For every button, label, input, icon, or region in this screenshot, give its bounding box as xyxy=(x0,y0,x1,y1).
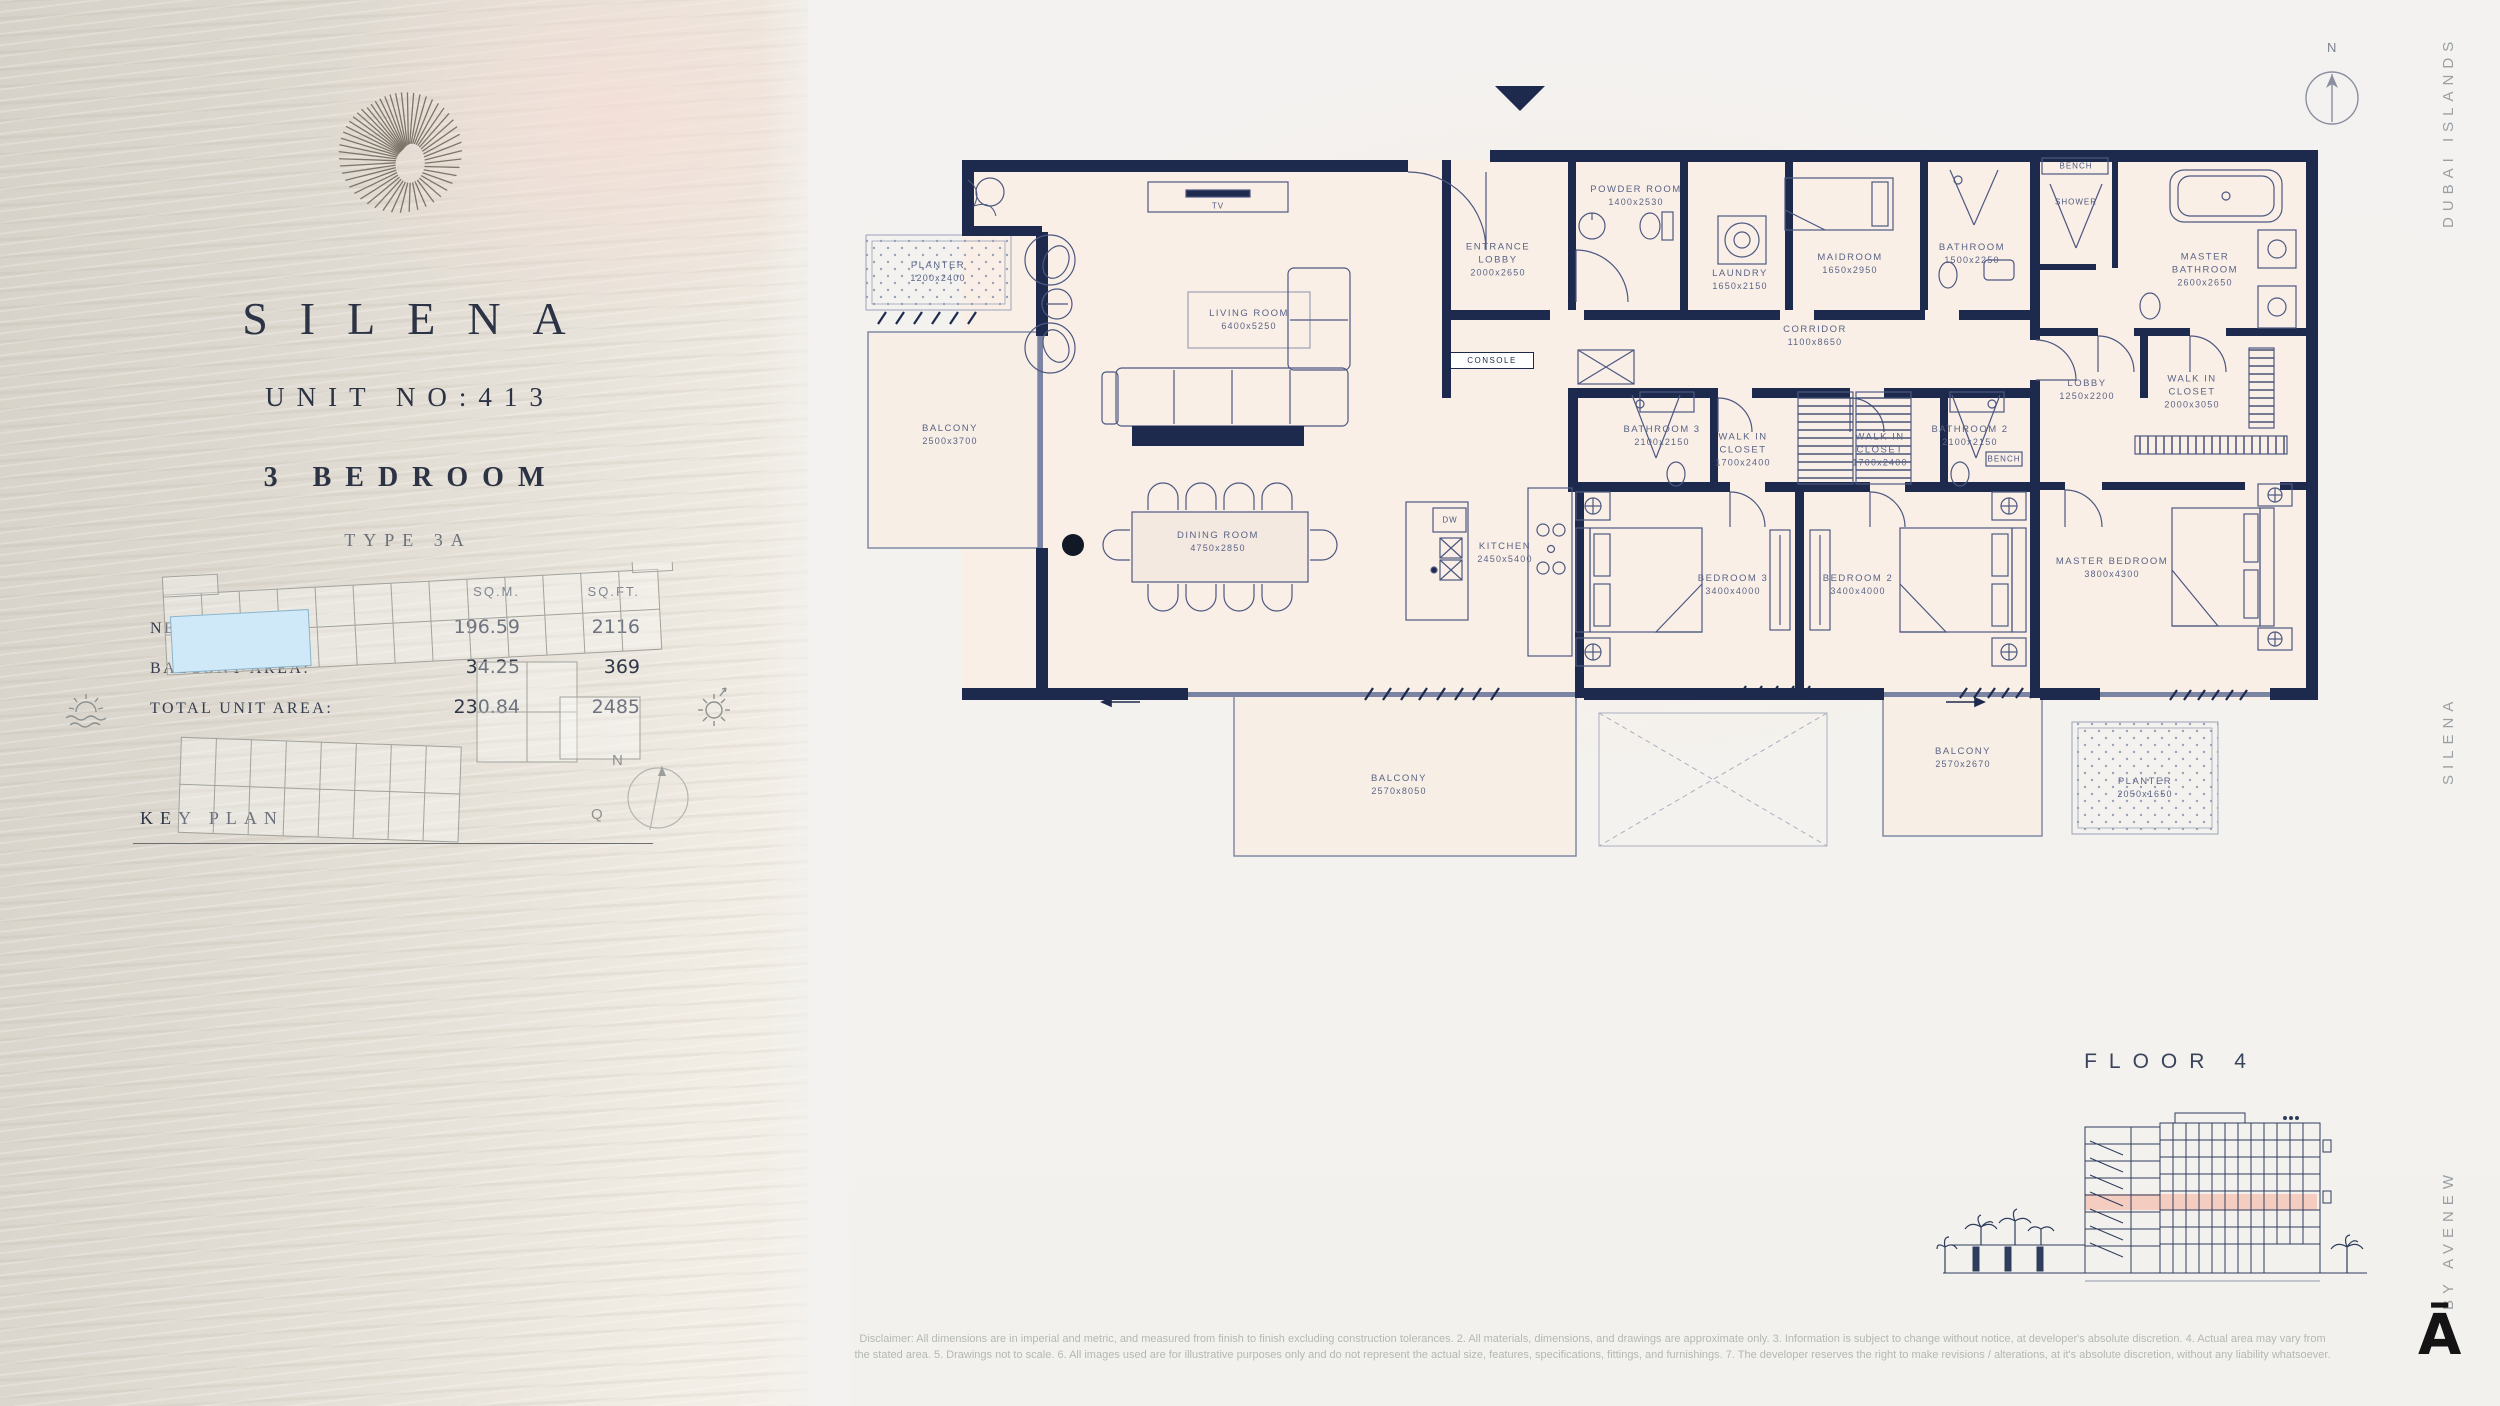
dishwasher-label: DW xyxy=(1442,516,1457,525)
room-label-bedroom-2: BEDROOM 23400x4000 xyxy=(1823,572,1894,598)
plan-north-label: N xyxy=(2327,40,2337,55)
avenew-logo-mark: Ā xyxy=(2418,1306,2461,1366)
room-label-planter-tl: PLANTER1200x2400 xyxy=(910,259,965,285)
entry-direction-icon xyxy=(1495,86,1545,111)
disclaimer-text: Disclaimer: All dimensions are in imperi… xyxy=(815,1332,2370,1363)
room-label-wic-bed2: WALK INCLOSET1700x2400 xyxy=(1852,431,1907,470)
floor-plan-drawing xyxy=(850,140,2320,885)
room-label-wic-master: WALK INCLOSET2000x3050 xyxy=(2164,373,2219,412)
room-label-balcony-right: BALCONY2570x2670 xyxy=(1935,745,1991,771)
sun-compass-icon xyxy=(690,684,738,732)
room-label-bedroom-3: BEDROOM 33400x4000 xyxy=(1698,572,1769,598)
room-label-kitchen: KITCHEN2450x5400 xyxy=(1477,540,1532,566)
room-label-lobby: LOBBY1250x2200 xyxy=(2059,377,2114,403)
room-label-master-bathroom: MASTERBATHROOM2600x2650 xyxy=(2172,251,2238,290)
unit-type: TYPE 3A xyxy=(0,530,808,551)
disclaimer-line-1: Disclaimer: All dimensions are in imperi… xyxy=(815,1332,2370,1348)
room-label-bathroom-maid: BATHROOM1500x2250 xyxy=(1939,241,2005,267)
room-label-balcony-bottom: BALCONY2570x8050 xyxy=(1371,772,1427,798)
plan-compass-icon xyxy=(2302,62,2362,128)
side-text-by-avenew: BY AVENEW xyxy=(2440,1130,2457,1310)
room-label-dining: DINING ROOM4750x2850 xyxy=(1177,529,1259,555)
room-label-master-bedroom: MASTER BEDROOM3800x4300 xyxy=(2056,555,2168,581)
floor-label: FLOOR 4 xyxy=(2015,1050,2315,1074)
key-plan-q-label: Q xyxy=(591,806,603,823)
room-label-laundry: LAUNDRY1650x2150 xyxy=(1712,267,1768,293)
room-label-bathroom-2: BATHROOM 22100x2150 xyxy=(1931,423,2008,449)
console-label: CONSOLE xyxy=(1450,352,1534,369)
room-label-living: LIVING ROOM6400x5250 xyxy=(1209,307,1289,333)
building-elevation-drawing xyxy=(1935,1095,2375,1310)
project-title: SILENA xyxy=(0,292,808,345)
room-label-planter-br: PLANTER2050x1650 xyxy=(2117,775,2172,801)
brochure-page: SILENA UNIT NO:413 3 BEDROOM TYPE 3A SQ.… xyxy=(0,0,2500,1406)
side-text-silena: SILENA xyxy=(2440,645,2457,785)
bedroom-count: 3 BEDROOM xyxy=(0,462,808,494)
unit-number: UNIT NO:413 xyxy=(0,382,808,413)
room-label-powder: POWDER ROOM1400x2530 xyxy=(1590,183,1681,209)
disclaimer-line-2: the stated area. 5. Drawings not to scal… xyxy=(815,1348,2370,1364)
room-label-bathroom-3: BATHROOM 32100x2150 xyxy=(1623,423,1700,449)
bench-label-master: BENCH xyxy=(2059,162,2092,171)
key-plan-compass-icon xyxy=(622,760,692,834)
room-label-wic-bed3: WALK INCLOSET1700x2400 xyxy=(1715,431,1770,470)
side-text-dubai-islands: DUBAI ISLANDS xyxy=(2440,38,2457,228)
tv-label: TV xyxy=(1212,202,1224,211)
room-label-maidroom: MAIDROOM1650x2950 xyxy=(1817,251,1882,277)
silena-shell-logo-icon xyxy=(312,58,482,238)
sea-sunset-icon xyxy=(60,686,112,732)
bench-label-bath2: BENCH xyxy=(1987,455,2020,464)
room-label-balcony-left: BALCONY2500x3700 xyxy=(922,422,978,448)
floor-plan: PLANTER1200x2400 BALCONY2500x3700 LIVING… xyxy=(850,140,2320,885)
panel-edge-fade xyxy=(760,0,850,1406)
room-label-entrance-lobby: ENTRANCELOBBY2000x2650 xyxy=(1466,241,1530,280)
room-label-corridor: CORRIDOR1100x8650 xyxy=(1783,323,1847,349)
shower-label-master: SHOWER xyxy=(2055,198,2097,207)
